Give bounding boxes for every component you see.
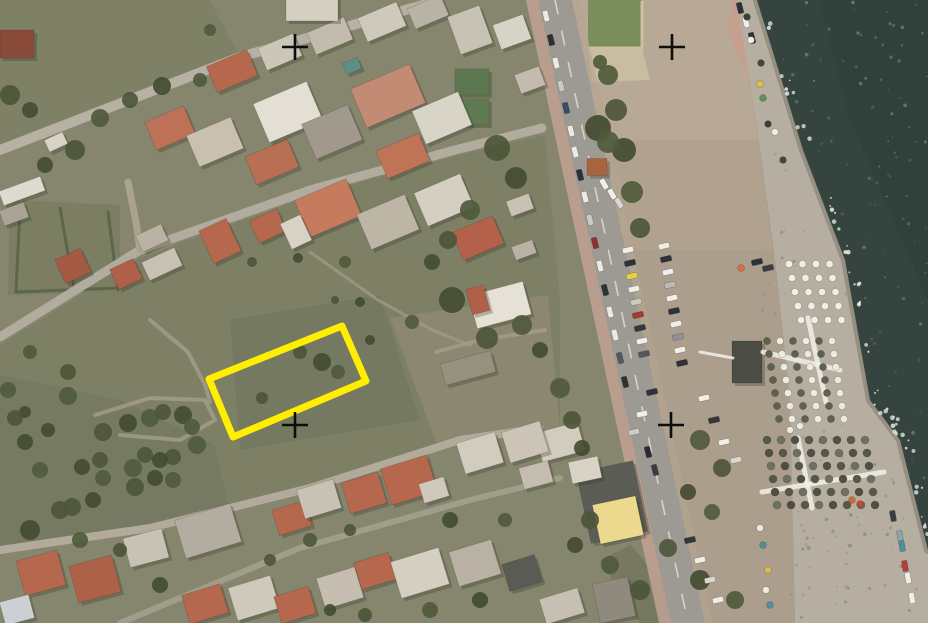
sea-speckle	[820, 143, 823, 146]
sand-speckle	[812, 537, 814, 539]
sea-speckle	[894, 371, 897, 374]
surf-fleck	[846, 250, 851, 255]
sea-speckle	[906, 195, 908, 197]
building	[592, 496, 643, 544]
beach-umbrella	[789, 337, 796, 344]
tree	[593, 55, 607, 69]
tree	[355, 297, 365, 307]
beach-umbrella	[811, 475, 819, 483]
sea-speckle	[879, 78, 882, 81]
tree	[0, 85, 20, 105]
tree	[512, 315, 532, 335]
beach-umbrella	[828, 337, 835, 344]
beach-umbrella	[835, 302, 842, 309]
surf-fleck	[874, 404, 876, 406]
beach-umbrella	[744, 14, 751, 21]
building	[286, 0, 338, 21]
beach-umbrella	[797, 423, 804, 430]
sea-speckle	[842, 60, 845, 63]
sea-speckle	[884, 276, 886, 278]
beach-umbrella	[760, 542, 767, 549]
sand-speckle	[845, 352, 847, 354]
surf-fleck	[858, 303, 861, 306]
surf-fleck	[924, 523, 926, 525]
beach-umbrella	[837, 462, 845, 470]
sand-speckle	[835, 602, 837, 604]
sea-speckle	[791, 73, 795, 77]
tree	[439, 287, 465, 313]
surf-fleck	[877, 390, 879, 392]
surf-fleck	[895, 423, 898, 426]
sand-speckle	[802, 436, 805, 439]
beach-umbrella	[783, 475, 791, 483]
sea-speckle	[899, 97, 901, 99]
tree	[563, 411, 581, 429]
sand-speckle	[841, 424, 842, 425]
beach-umbrella	[773, 402, 780, 409]
tree	[204, 24, 216, 36]
beach-umbrella	[815, 337, 822, 344]
beach-umbrella	[819, 436, 827, 444]
beach-umbrella	[805, 288, 812, 295]
sea-speckle	[887, 164, 888, 165]
sea-speckle	[921, 302, 923, 304]
tree	[344, 524, 356, 536]
beach-umbrella	[776, 337, 783, 344]
sand-speckle	[803, 231, 805, 233]
surf-fleck	[912, 449, 916, 453]
tree	[113, 543, 127, 557]
beach-umbrella	[788, 274, 795, 281]
surf-fleck	[886, 407, 889, 410]
sea-speckle	[827, 117, 830, 120]
sea-speckle	[805, 1, 808, 4]
beach-umbrella	[780, 157, 787, 164]
beach-umbrella	[849, 497, 856, 504]
sea-speckle	[897, 59, 901, 63]
sea-speckle	[856, 31, 859, 34]
surf-fleck	[780, 74, 784, 78]
beach-umbrella	[823, 389, 830, 396]
park-lawn	[588, 0, 642, 50]
surf-fleck	[891, 424, 896, 429]
sand-speckle	[902, 517, 905, 520]
surf-fleck	[853, 283, 855, 285]
sea-speckle	[782, 58, 784, 60]
sand-speckle	[847, 511, 849, 513]
tree	[85, 492, 101, 508]
surf-fleck	[832, 219, 836, 223]
beach-umbrella	[767, 602, 774, 609]
tree	[690, 430, 710, 450]
sand-speckle	[908, 609, 911, 612]
beach-umbrella	[763, 337, 770, 344]
surf-fleck	[905, 447, 908, 450]
sand-speckle	[800, 616, 803, 619]
sea-speckle	[819, 58, 822, 61]
sand-speckle	[856, 516, 858, 518]
beach-umbrella	[808, 302, 815, 309]
sea-speckle	[830, 140, 833, 143]
tree	[476, 327, 498, 349]
building	[455, 69, 489, 95]
beach-umbrella	[813, 488, 821, 496]
tree	[153, 77, 171, 95]
beach-umbrella	[807, 449, 815, 457]
sea-speckle	[902, 297, 905, 300]
beach-umbrella	[869, 488, 877, 496]
sea-speckle	[841, 212, 844, 215]
sand-speckle	[802, 593, 805, 596]
sand-speckle	[820, 460, 821, 461]
beach-umbrella	[765, 567, 772, 574]
sand-speckle	[883, 583, 887, 587]
beach-umbrella	[808, 376, 815, 383]
sand-speckle	[844, 600, 847, 603]
sand-speckle	[858, 523, 861, 526]
tree	[155, 404, 171, 420]
sea-speckle	[878, 165, 880, 167]
beach-umbrella	[767, 462, 775, 470]
sand-speckle	[844, 444, 845, 445]
sea-speckle	[891, 137, 893, 139]
beach-umbrella	[763, 587, 770, 594]
surf-fleck	[921, 487, 923, 489]
sand-speckle	[827, 550, 830, 553]
beach-umbrella	[802, 337, 809, 344]
beach-umbrella	[738, 265, 745, 272]
sea-speckle	[871, 105, 875, 109]
surf-fleck	[792, 91, 795, 94]
sand-speckle	[844, 292, 848, 296]
sand-speckle	[764, 246, 767, 249]
beach-umbrella	[802, 274, 809, 281]
beach-umbrella	[849, 449, 857, 457]
satellite-imagery	[0, 0, 928, 623]
sea-speckle	[925, 227, 927, 229]
sand-speckle	[892, 549, 893, 550]
sea-speckle	[855, 65, 859, 69]
tree	[193, 73, 207, 87]
tree	[405, 315, 419, 329]
sea-speckle	[926, 262, 928, 264]
sea-speckle	[902, 218, 905, 221]
tree	[303, 533, 317, 547]
beach-umbrella	[797, 389, 804, 396]
tree	[532, 342, 548, 358]
tree	[247, 257, 257, 267]
tree	[605, 99, 627, 121]
tree	[680, 484, 696, 500]
sand-speckle	[784, 292, 786, 294]
beach-umbrella	[784, 389, 791, 396]
sea-speckle	[911, 458, 913, 460]
beach-umbrella	[824, 316, 831, 323]
beach-umbrella	[829, 274, 836, 281]
sea-speckle	[914, 241, 915, 242]
beach-umbrella	[781, 462, 789, 470]
sea-speckle	[911, 431, 915, 435]
surf-fleck	[900, 433, 905, 438]
sand-speckle	[849, 513, 853, 517]
beach-umbrella	[799, 488, 807, 496]
tree	[704, 504, 720, 520]
tree	[137, 447, 153, 463]
tree	[313, 353, 331, 371]
sea-speckle	[897, 286, 899, 288]
sand-speckle	[924, 560, 925, 561]
surf-fleck	[789, 80, 791, 82]
sea-speckle	[879, 330, 881, 332]
beach-umbrella	[782, 376, 789, 383]
tree	[22, 102, 38, 118]
sea-speckle	[860, 34, 862, 36]
beach-umbrella	[826, 260, 833, 267]
beach-umbrella	[865, 462, 873, 470]
sand-speckle	[823, 250, 824, 251]
sand-speckle	[799, 524, 802, 527]
beach-umbrella	[785, 260, 792, 267]
sand-speckle	[807, 546, 811, 550]
sea-speckle	[862, 246, 865, 249]
tree	[165, 472, 181, 488]
sea-speckle	[888, 385, 890, 387]
sea-speckle	[811, 43, 814, 46]
aerial-map-view	[0, 0, 928, 623]
sea-speckle	[915, 141, 917, 143]
tree	[94, 423, 112, 441]
beach-umbrella	[799, 402, 806, 409]
sand-speckle	[899, 457, 902, 460]
surf-fleck	[837, 227, 840, 230]
sand-speckle	[771, 257, 772, 258]
sand-speckle	[780, 262, 781, 263]
beach-umbrella	[797, 475, 805, 483]
beach-umbrella	[838, 316, 845, 323]
sand-speckle	[845, 551, 848, 554]
tree	[659, 539, 677, 557]
beach-umbrella	[791, 350, 798, 357]
surf-fleck	[801, 124, 805, 128]
beach-umbrella	[821, 449, 829, 457]
tree	[621, 181, 643, 203]
beach-umbrella	[811, 316, 818, 323]
beach-umbrella	[785, 488, 793, 496]
surf-fleck	[796, 125, 800, 129]
sea-speckle	[813, 80, 815, 82]
sea-speckle	[901, 44, 903, 46]
tree	[74, 459, 90, 475]
beach-umbrella	[861, 436, 869, 444]
beach-umbrella	[801, 501, 809, 509]
tree	[72, 532, 88, 548]
tree	[331, 365, 345, 379]
surf-fleck	[867, 351, 869, 353]
tree	[126, 478, 144, 496]
sea-speckle	[811, 110, 813, 112]
sea-speckle	[901, 25, 905, 29]
surf-fleck	[874, 392, 876, 394]
surf-fleck	[864, 343, 868, 347]
beach-umbrella	[812, 402, 819, 409]
beach-umbrella	[778, 350, 785, 357]
sea-speckle	[903, 104, 907, 108]
beach-umbrella	[795, 462, 803, 470]
sea-speckle	[859, 82, 863, 86]
tree	[95, 470, 111, 486]
tree	[59, 387, 77, 405]
beach-umbrella	[855, 488, 863, 496]
tree	[630, 218, 650, 238]
surf-fleck	[846, 245, 848, 247]
tree	[122, 92, 138, 108]
sand-speckle	[780, 231, 783, 234]
sand-speckle	[797, 511, 799, 513]
beach-umbrella	[773, 501, 781, 509]
tree	[256, 392, 268, 404]
beach-umbrella	[863, 449, 871, 457]
sand-speckle	[836, 586, 838, 588]
sand-speckle	[870, 532, 873, 535]
tree	[60, 364, 76, 380]
sand-speckle	[809, 566, 811, 568]
sand-speckle	[761, 310, 763, 312]
surf-fleck	[785, 91, 789, 95]
sea-speckle	[881, 43, 884, 46]
beach-umbrella	[823, 462, 831, 470]
sand-speckle	[822, 429, 825, 432]
beach-umbrella	[772, 129, 779, 136]
sea-speckle	[915, 3, 917, 5]
tree	[550, 378, 570, 398]
tree	[498, 513, 512, 527]
sand-speckle	[848, 544, 852, 548]
beach-umbrella	[769, 475, 777, 483]
beach-umbrella	[821, 376, 828, 383]
sea-speckle	[874, 36, 877, 39]
sand-speckle	[769, 282, 771, 284]
surf-fleck	[914, 490, 919, 495]
sand-speckle	[915, 587, 918, 590]
beach-umbrella	[871, 501, 879, 509]
beach-umbrella	[777, 436, 785, 444]
sea-speckle	[918, 358, 921, 361]
beach-umbrella	[760, 95, 767, 102]
surf-fleck	[830, 208, 834, 212]
sea-speckle	[818, 150, 819, 151]
sea-speckle	[926, 76, 928, 78]
sea-speckle	[883, 253, 884, 254]
sand-speckle	[760, 337, 763, 340]
beach-umbrella	[805, 436, 813, 444]
tree	[324, 604, 336, 616]
sand-speckle	[847, 587, 850, 590]
tree	[20, 520, 40, 540]
sand-speckle	[785, 169, 788, 172]
beach-umbrella	[857, 501, 864, 508]
sand-speckle	[790, 445, 792, 447]
beach-umbrella	[833, 436, 841, 444]
surf-fleck	[784, 87, 788, 91]
sand-speckle	[774, 153, 777, 156]
beach-umbrella	[829, 501, 837, 509]
sea-speckle	[868, 346, 869, 347]
tree	[442, 512, 458, 528]
sea-speckle	[873, 342, 876, 345]
sea-speckle	[889, 22, 892, 25]
beach-umbrella	[793, 363, 800, 370]
surf-fleck	[893, 416, 895, 418]
beach-umbrella	[788, 415, 795, 422]
sand-speckle	[774, 312, 777, 315]
beach-umbrella	[839, 475, 847, 483]
beach-umbrella	[804, 350, 811, 357]
sea-speckle	[908, 126, 910, 128]
sand-speckle	[808, 586, 812, 590]
sand-speckle	[868, 587, 871, 590]
beach-umbrella	[799, 260, 806, 267]
beach-umbrella	[812, 260, 819, 267]
sea-speckle	[887, 140, 889, 142]
tree	[726, 591, 744, 609]
beach-umbrella	[771, 488, 779, 496]
tree	[331, 296, 339, 304]
sand-speckle	[825, 518, 828, 521]
surf-fleck	[807, 136, 812, 141]
sea-speckle	[827, 27, 831, 31]
beach-umbrella	[786, 402, 793, 409]
sand-speckle	[884, 494, 887, 497]
surf-fleck	[768, 21, 773, 26]
tree	[630, 580, 650, 600]
sea-speckle	[871, 338, 873, 340]
sea-speckle	[889, 175, 892, 178]
sea-speckle	[854, 9, 855, 10]
beach-umbrella	[819, 363, 826, 370]
surf-fleck	[892, 429, 896, 433]
sea-speckle	[795, 100, 799, 104]
tree	[188, 436, 206, 454]
tree	[358, 608, 372, 622]
beach-umbrella	[830, 350, 837, 357]
beach-umbrella	[763, 436, 771, 444]
sand-speckle	[790, 593, 792, 595]
sand-speckle	[805, 543, 808, 546]
tree	[581, 511, 599, 529]
beach-umbrella	[838, 402, 845, 409]
sand-speckle	[831, 530, 834, 533]
sea-speckle	[924, 140, 927, 143]
tree	[597, 131, 619, 153]
sand-speckle	[863, 532, 867, 536]
sea-speckle	[923, 476, 926, 479]
sand-speckle	[784, 229, 786, 231]
sand-speckle	[884, 544, 885, 545]
tree	[0, 382, 16, 398]
sea-speckle	[895, 156, 898, 159]
sea-speckle	[919, 323, 922, 326]
tree	[119, 414, 137, 432]
tree	[7, 410, 23, 426]
tree	[65, 140, 85, 160]
surf-fleck	[896, 417, 900, 421]
sea-speckle	[805, 53, 809, 57]
beach-umbrella	[767, 363, 774, 370]
tree	[293, 253, 303, 263]
sand-speckle	[792, 260, 795, 263]
beach-umbrella	[765, 350, 772, 357]
building	[732, 341, 762, 383]
